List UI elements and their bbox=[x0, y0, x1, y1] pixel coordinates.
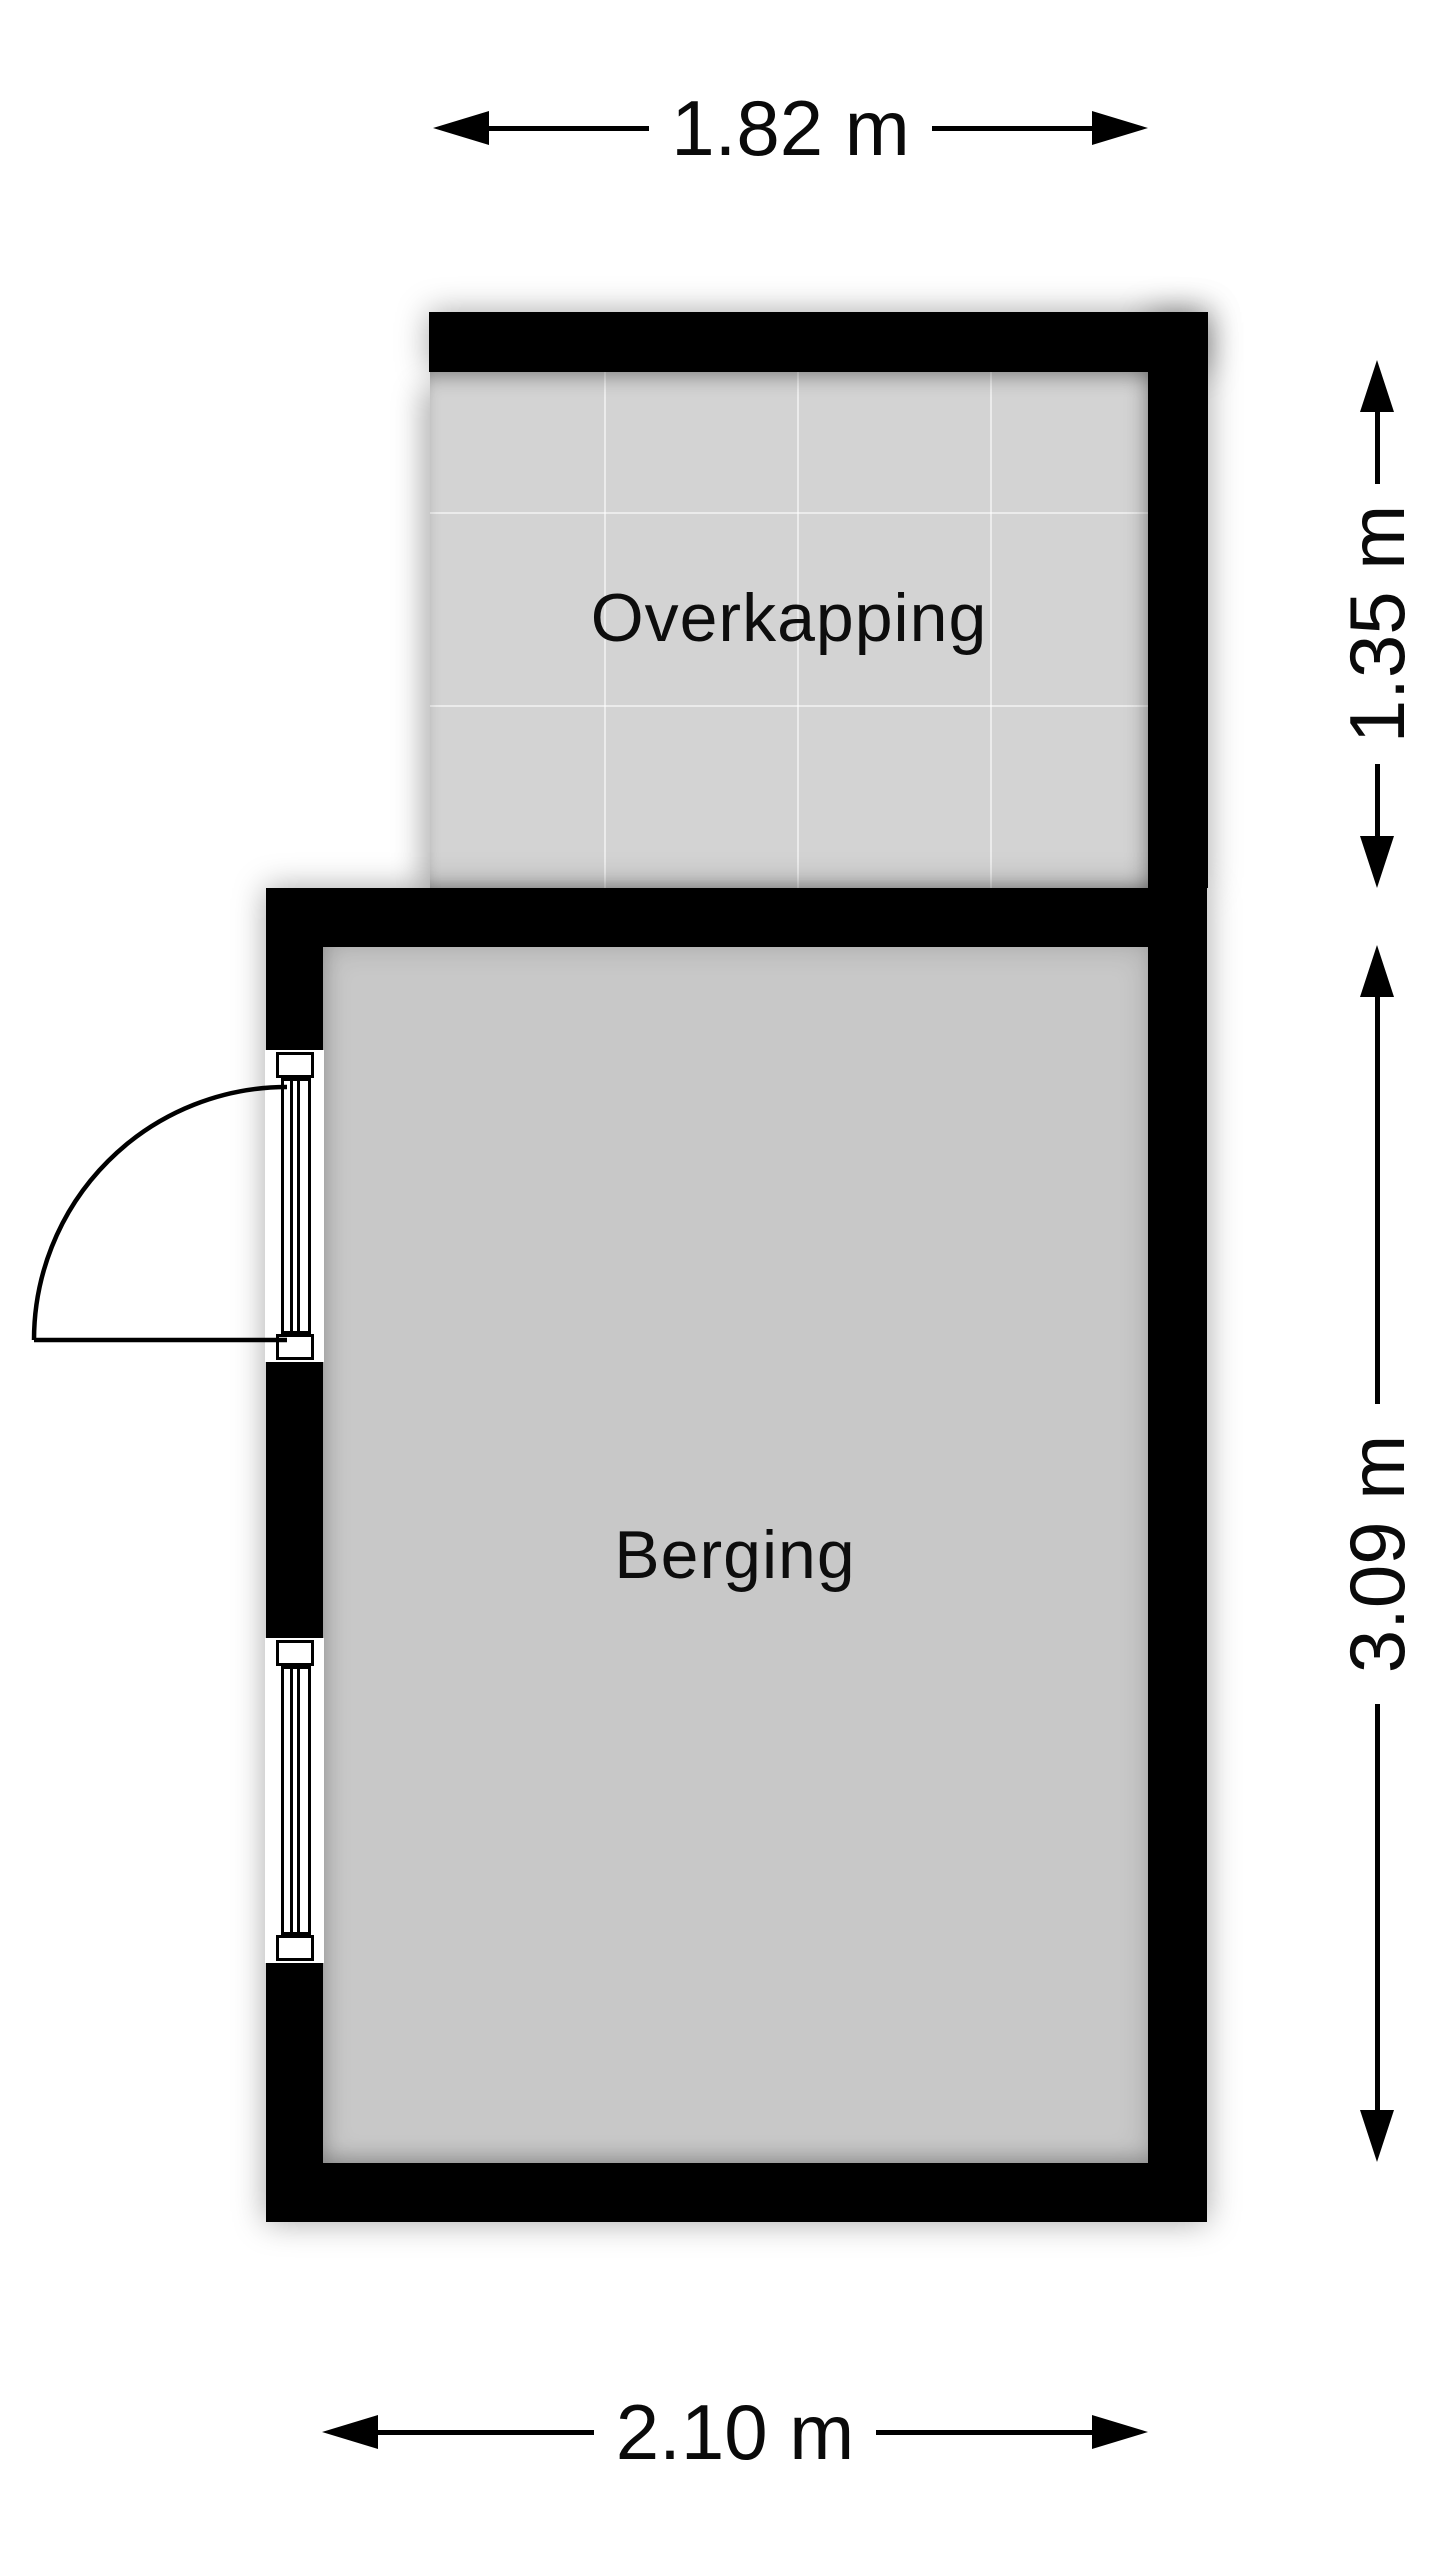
dimension-right-lower: 3.09 m bbox=[1356, 945, 1398, 2162]
dimension-line bbox=[489, 126, 649, 131]
window-frame-cap-bottom bbox=[276, 1935, 314, 1961]
arrowhead-left-icon bbox=[433, 111, 489, 145]
window-opening bbox=[265, 1638, 324, 1963]
dimension-line bbox=[378, 2430, 594, 2435]
dimension-bottom-label: 2.10 m bbox=[594, 2393, 876, 2471]
arrowhead-down-icon bbox=[1360, 2110, 1394, 2162]
dimension-top: 1.82 m bbox=[433, 95, 1148, 161]
door-swing-icon bbox=[24, 1077, 297, 1350]
dimension-line bbox=[1375, 764, 1380, 836]
dimension-label-wrap: 3.09 m bbox=[1356, 1404, 1398, 1704]
door-frame-cap-top bbox=[276, 1052, 314, 1078]
window-glazing-line bbox=[297, 1669, 300, 1932]
dimension-line bbox=[932, 126, 1092, 131]
window-glazing bbox=[281, 1666, 311, 1935]
dimension-line bbox=[876, 2430, 1092, 2435]
dimension-line bbox=[1375, 1704, 1380, 2111]
room-label-berging: Berging bbox=[614, 1516, 855, 1594]
window-glazing-line bbox=[290, 1669, 293, 1932]
arrowhead-right-icon bbox=[1092, 111, 1148, 145]
overkapping-right-wall bbox=[1148, 312, 1208, 888]
dimension-right-upper-label: 1.35 m bbox=[1338, 505, 1416, 743]
dimension-line bbox=[1375, 997, 1380, 1404]
dimension-right-upper: 1.35 m bbox=[1356, 360, 1398, 888]
arrowhead-up-icon bbox=[1360, 360, 1394, 412]
arrowhead-down-icon bbox=[1360, 836, 1394, 888]
arrowhead-left-icon bbox=[322, 2415, 378, 2449]
floorplan-canvas: Overkapping Berging 1.82 m 1.35 m 3.09 m… bbox=[0, 0, 1440, 2560]
arrowhead-right-icon bbox=[1092, 2415, 1148, 2449]
window-frame-cap-top bbox=[276, 1640, 314, 1666]
arrowhead-up-icon bbox=[1360, 945, 1394, 997]
dimension-right-lower-label: 3.09 m bbox=[1338, 1434, 1416, 1672]
dimension-bottom: 2.10 m bbox=[322, 2399, 1148, 2465]
dimension-top-label: 1.82 m bbox=[649, 89, 931, 167]
door-glazing-line bbox=[297, 1081, 300, 1331]
dimension-label-wrap: 1.35 m bbox=[1356, 484, 1398, 764]
room-label-overkapping: Overkapping bbox=[591, 579, 988, 657]
overkapping-top-wall bbox=[429, 312, 1208, 372]
dimension-line bbox=[1375, 412, 1380, 484]
